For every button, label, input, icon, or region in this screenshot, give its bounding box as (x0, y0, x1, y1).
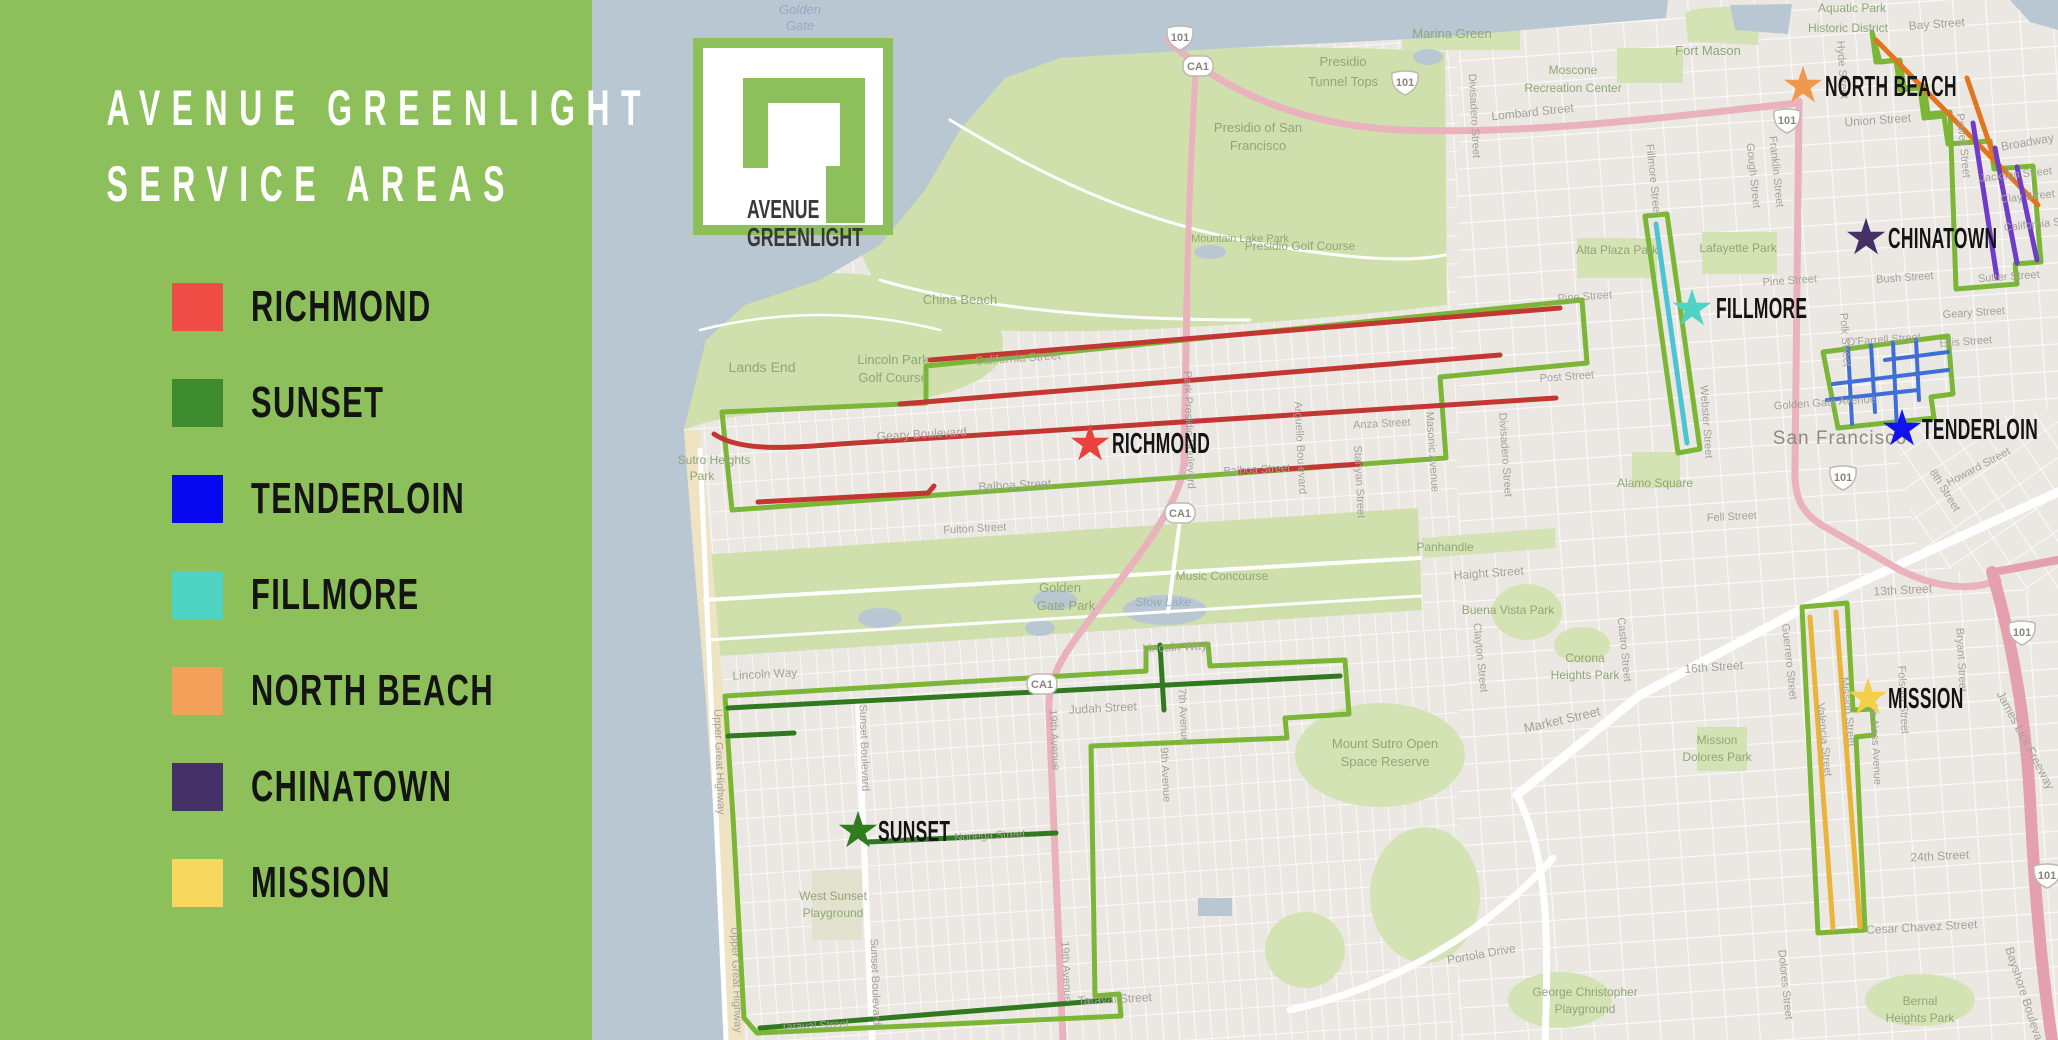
map-label: Heights Park (1886, 1011, 1956, 1025)
shield-ca1-icon: CA1 (1027, 674, 1057, 694)
logo-text-line1: AVENUE (747, 194, 819, 225)
map-label: Lands End (729, 359, 796, 375)
map-label: West Sunset (799, 889, 867, 903)
legend-item-sunset: SUNSET (0, 379, 592, 427)
north-beach-star-icon: ★ (1781, 57, 1826, 113)
svg-text:101: 101 (1778, 115, 1796, 127)
richmond-label: RICHMOND (251, 282, 432, 332)
map-label: Playground (1555, 1002, 1616, 1016)
map-label: Marina Green (1412, 26, 1491, 41)
svg-text:101: 101 (2013, 627, 2031, 639)
map-label: Dolores Park (1682, 750, 1752, 764)
legend-item-fillmore: FILLMORE (0, 571, 592, 619)
map-label: George Christopher (1532, 985, 1637, 999)
map-label: China Beach (923, 292, 997, 307)
tenderloin-swatch (172, 475, 223, 523)
sidebar-title-line2: SERVICE AREAS (107, 146, 486, 222)
richmond-star-icon: ★ (1068, 415, 1113, 471)
svg-text:101: 101 (1834, 472, 1852, 484)
map-label: Space Reserve (1341, 754, 1430, 769)
map-label: Golf Course (858, 370, 927, 385)
chinatown-label: CHINATOWN (251, 762, 452, 812)
map-label: Sutro Heights (678, 453, 751, 467)
map-label: Moscone (1549, 63, 1598, 77)
north-beach-map-label: NORTH BEACH (1825, 71, 1957, 104)
sunset-map-label: SUNSET (878, 816, 950, 849)
map-label: Golden (1039, 580, 1081, 595)
sunset-swatch (172, 379, 223, 427)
mission-star-icon: ★ (1846, 669, 1891, 725)
legend-item-tenderloin: TENDERLOIN (0, 475, 592, 523)
chinatown-map-label: CHINATOWN (1888, 223, 1997, 256)
map-label: Panhandle (1416, 540, 1474, 554)
map-label: Aquatic Park (1818, 1, 1887, 15)
svg-text:101: 101 (2038, 870, 2056, 882)
chinatown-star-icon: ★ (1844, 209, 1889, 265)
map-label: Music Concourse (1176, 569, 1269, 583)
sidebar: AVENUE GREENLIGHT SERVICE AREAS RICHMOND… (0, 0, 592, 1040)
legend-item-chinatown: CHINATOWN (0, 763, 592, 811)
map-label: Alamo Square (1617, 476, 1693, 490)
legend-item-richmond: RICHMOND (0, 283, 592, 331)
map-label: Corona (1565, 651, 1605, 665)
map-label: Mission (1697, 733, 1738, 747)
mission-map-label: MISSION (1888, 683, 1964, 716)
svg-text:CA1: CA1 (1169, 508, 1191, 520)
map-label: Alta Plaza Park (1576, 243, 1659, 257)
legend-item-mission: MISSION (0, 859, 592, 907)
map-label: Fort Mason (1675, 43, 1741, 58)
shield-ca1-icon: CA1 (1183, 56, 1213, 76)
map-label: Gate (786, 18, 814, 33)
svg-text:101: 101 (1396, 77, 1414, 89)
fillmore-label: FILLMORE (251, 570, 420, 620)
fillmore-star-icon: ★ (1670, 280, 1715, 336)
map-label: Presidio of San (1214, 120, 1302, 135)
map-label: Buena Vista Park (1462, 603, 1556, 617)
svg-text:CA1: CA1 (1187, 61, 1209, 73)
map-label: Golden (779, 2, 821, 17)
legend-item-north-beach: NORTH BEACH (0, 667, 592, 715)
map-label: Presidio (1320, 54, 1367, 69)
map-label: Park (690, 469, 716, 483)
chinatown-swatch (172, 763, 223, 811)
mission-swatch (172, 859, 223, 907)
map-label: Recreation Center (1524, 81, 1621, 95)
tenderloin-label: TENDERLOIN (251, 474, 465, 524)
map-label: Mountain Lake Park (1191, 233, 1289, 245)
north-beach-label: NORTH BEACH (251, 666, 494, 716)
map-label: Heights Park (1551, 668, 1621, 682)
north-beach-swatch (172, 667, 223, 715)
richmond-map-label: RICHMOND (1112, 428, 1210, 461)
fillmore-swatch (172, 571, 223, 619)
fillmore-map-label: FILLMORE (1716, 293, 1807, 326)
mission-label: MISSION (251, 858, 391, 908)
map-label: Bernal (1903, 994, 1938, 1008)
richmond-swatch (172, 283, 223, 331)
map-label: Playground (803, 906, 864, 920)
map-label: Lafayette Park (1699, 241, 1777, 255)
sunset-star-icon: ★ (836, 802, 881, 858)
svg-text:101: 101 (1171, 32, 1189, 44)
avenue-greenlight-logo: AVENUE GREENLIGHT (693, 38, 893, 235)
shield-ca1-icon: CA1 (1165, 503, 1195, 523)
legend: RICHMONDSUNSETTENDERLOINFILLMORENORTH BE… (0, 283, 592, 907)
tenderloin-map-label: TENDERLOIN (1922, 414, 2038, 447)
map-label: Tunnel Tops (1308, 74, 1379, 89)
svg-text:CA1: CA1 (1031, 679, 1053, 691)
map-label: Historic District (1808, 21, 1889, 35)
sunset-label: SUNSET (251, 378, 384, 428)
logo-text-line2: GREENLIGHT (747, 222, 863, 253)
map-label: Gate Park (1037, 598, 1096, 613)
map-label: Francisco (1230, 138, 1286, 153)
map-label: Mount Sutro Open (1332, 736, 1438, 751)
map-label: Stow Lake (1135, 595, 1191, 609)
sidebar-title-line1: AVENUE GREENLIGHT (107, 70, 486, 146)
map-label: Lincoln Park (857, 352, 929, 367)
tenderloin-star-icon: ★ (1880, 400, 1925, 456)
page: GoldenGateMarina GreenFort MasonAquatic … (0, 0, 2058, 1040)
